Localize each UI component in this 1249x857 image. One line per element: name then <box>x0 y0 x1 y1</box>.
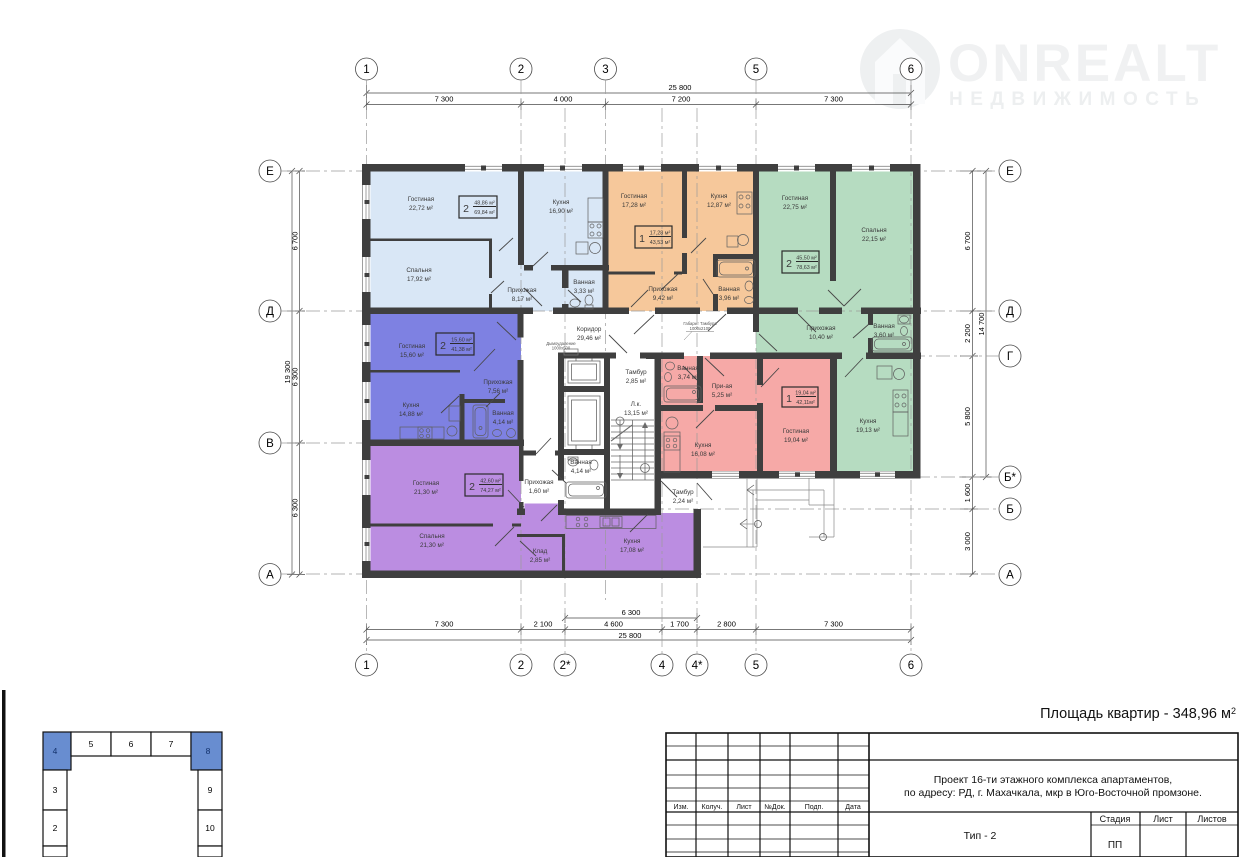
svg-text:А: А <box>266 570 274 582</box>
svg-text:Клад: Клад <box>533 548 548 555</box>
svg-text:16,90 м²: 16,90 м² <box>549 208 573 215</box>
svg-text:Прихожая: Прихожая <box>524 479 553 486</box>
svg-text:5: 5 <box>89 739 94 749</box>
svg-text:17,92 м²: 17,92 м² <box>407 276 431 283</box>
svg-text:2: 2 <box>469 481 475 493</box>
svg-text:Листов: Листов <box>1197 814 1226 824</box>
svg-text:17,28 м²: 17,28 м² <box>622 202 646 209</box>
svg-text:В: В <box>266 438 274 450</box>
svg-text:3,60 м²: 3,60 м² <box>874 332 894 339</box>
svg-text:№Док.: №Док. <box>764 804 785 811</box>
svg-text:78,63 м²: 78,63 м² <box>796 265 817 271</box>
svg-text:48,86 м²: 48,86 м² <box>474 201 495 207</box>
svg-text:6 700: 6 700 <box>963 232 972 251</box>
svg-text:2: 2 <box>440 340 446 352</box>
svg-text:7 300: 7 300 <box>435 95 454 104</box>
svg-text:Площадь квартир - 348,96 м2: Площадь квартир - 348,96 м2 <box>1040 706 1236 722</box>
svg-text:4 600: 4 600 <box>604 620 623 629</box>
svg-text:22,72 м²: 22,72 м² <box>409 205 433 212</box>
svg-text:Ванная: Ванная <box>492 410 514 417</box>
svg-text:74,27 м²: 74,27 м² <box>480 488 501 494</box>
svg-text:2: 2 <box>518 64 524 76</box>
svg-text:1 700: 1 700 <box>670 620 689 629</box>
svg-text:А: А <box>1006 570 1014 582</box>
svg-text:6 300: 6 300 <box>291 368 300 387</box>
svg-text:Ванная: Ванная <box>718 286 740 293</box>
svg-text:5: 5 <box>753 64 759 76</box>
svg-text:Ванная: Ванная <box>677 365 699 372</box>
svg-text:Ванная: Ванная <box>570 459 592 466</box>
svg-text:1: 1 <box>639 233 645 245</box>
svg-text:Прихожая: Прихожая <box>648 286 677 293</box>
svg-text:Прихожая: Прихожая <box>507 287 536 294</box>
svg-text:7: 7 <box>169 739 174 749</box>
svg-text:2,24 м²: 2,24 м² <box>673 498 693 505</box>
svg-text:Гостиная: Гостиная <box>783 428 809 435</box>
svg-text:21,30 м²: 21,30 м² <box>420 542 444 549</box>
svg-text:Коридор: Коридор <box>577 326 602 333</box>
svg-text:25 800: 25 800 <box>669 83 692 92</box>
svg-text:9,42 м²: 9,42 м² <box>653 295 673 302</box>
svg-text:8: 8 <box>206 746 211 756</box>
svg-text:1 600: 1 600 <box>963 484 972 503</box>
svg-text:Колуч.: Колуч. <box>702 804 723 811</box>
svg-text:НЕДВИЖИМОСТЬ: НЕДВИЖИМОСТЬ <box>949 89 1206 110</box>
svg-text:2 100: 2 100 <box>534 620 553 629</box>
svg-text:45,50 м²: 45,50 м² <box>796 256 817 262</box>
svg-text:14,88 м²: 14,88 м² <box>399 411 423 418</box>
svg-text:7 300: 7 300 <box>824 95 843 104</box>
svg-text:Кухня: Кухня <box>553 199 570 206</box>
svg-text:Д: Д <box>1006 306 1014 318</box>
svg-text:4: 4 <box>659 660 666 672</box>
svg-text:Изм.: Изм. <box>674 804 689 811</box>
svg-text:2: 2 <box>518 660 524 672</box>
svg-text:14 700: 14 700 <box>977 313 986 336</box>
svg-text:2 200: 2 200 <box>963 324 972 343</box>
svg-text:29,46 м²: 29,46 м² <box>577 335 601 342</box>
svg-text:Кухня: Кухня <box>860 418 877 425</box>
svg-text:17,08 м²: 17,08 м² <box>620 547 644 554</box>
svg-text:25 800: 25 800 <box>619 631 642 640</box>
svg-text:8,17 м²: 8,17 м² <box>512 296 532 303</box>
svg-text:5 800: 5 800 <box>963 407 972 426</box>
svg-text:2: 2 <box>53 823 58 833</box>
svg-text:3: 3 <box>53 785 58 795</box>
svg-text:Тамбур: Тамбур <box>625 368 647 376</box>
svg-text:Лист: Лист <box>1153 814 1173 824</box>
svg-text:1,60 м²: 1,60 м² <box>529 488 549 495</box>
svg-text:Спальня: Спальня <box>406 267 431 274</box>
svg-text:4 000: 4 000 <box>554 95 573 104</box>
svg-text:1: 1 <box>363 64 369 76</box>
svg-text:6 300: 6 300 <box>622 608 641 617</box>
svg-text:по адресу: РД, г. Махачкала, м: по адресу: РД, г. Махачкала, мкр в Юго-В… <box>904 787 1202 799</box>
svg-text:Кухня: Кухня <box>403 402 420 409</box>
svg-text:41,38 м²: 41,38 м² <box>451 347 472 353</box>
svg-text:Е: Е <box>266 166 274 178</box>
svg-text:6: 6 <box>908 64 914 76</box>
svg-text:1000х2100: 1000х2100 <box>690 326 711 331</box>
svg-text:17,28 м²: 17,28 м² <box>650 231 671 237</box>
svg-text:4*: 4* <box>692 660 703 672</box>
svg-text:Ванная: Ванная <box>573 279 595 286</box>
svg-text:2 800: 2 800 <box>717 620 736 629</box>
svg-text:Тамбур: Тамбур <box>672 488 694 496</box>
svg-text:Проект 16-ти этажного комплекс: Проект 16-ти этажного комплекса апартаме… <box>934 774 1172 786</box>
svg-text:3: 3 <box>602 64 608 76</box>
svg-text:42,60 м²: 42,60 м² <box>480 479 501 485</box>
svg-text:3,33 м²: 3,33 м² <box>574 288 594 295</box>
svg-text:Кухня: Кухня <box>711 193 728 200</box>
svg-text:69,84 м²: 69,84 м² <box>474 210 495 216</box>
svg-text:22,15 м²: 22,15 м² <box>862 236 886 243</box>
svg-text:2,85 м²: 2,85 м² <box>626 378 646 385</box>
svg-text:Л.к.: Л.к. <box>631 401 642 408</box>
svg-text:Спальня: Спальня <box>419 533 444 540</box>
svg-text:6: 6 <box>129 739 134 749</box>
svg-text:9: 9 <box>208 785 213 795</box>
svg-text:1: 1 <box>363 660 369 672</box>
svg-text:1000х500: 1000х500 <box>552 346 571 351</box>
svg-text:10: 10 <box>205 823 215 833</box>
svg-text:Лист: Лист <box>736 804 752 811</box>
svg-text:Е: Е <box>1006 166 1014 178</box>
svg-text:2: 2 <box>463 203 469 215</box>
svg-text:При-ая: При-ая <box>712 383 733 390</box>
svg-text:7 200: 7 200 <box>672 95 691 104</box>
svg-text:Гостиная: Гостиная <box>408 196 434 203</box>
svg-text:Б: Б <box>1006 504 1014 516</box>
svg-text:2: 2 <box>786 258 792 270</box>
svg-text:13,15 м²: 13,15 м² <box>624 410 648 417</box>
svg-text:4,14 м²: 4,14 м² <box>571 468 591 475</box>
svg-text:15,60 м²: 15,60 м² <box>400 352 424 359</box>
svg-text:Кухня: Кухня <box>624 538 641 545</box>
svg-text:2,85 м²: 2,85 м² <box>530 557 550 564</box>
svg-text:6 300: 6 300 <box>291 499 300 518</box>
svg-text:42,11м²: 42,11м² <box>796 400 815 406</box>
svg-text:6 700: 6 700 <box>291 232 300 251</box>
svg-text:Ванная: Ванная <box>873 323 895 330</box>
svg-text:6: 6 <box>908 660 914 672</box>
svg-text:Б*: Б* <box>1004 472 1017 484</box>
svg-text:16,08 м²: 16,08 м² <box>691 451 715 458</box>
svg-text:4: 4 <box>53 746 58 756</box>
svg-text:Стадия: Стадия <box>1100 814 1131 824</box>
svg-text:21,30 м²: 21,30 м² <box>414 489 438 496</box>
svg-text:2*: 2* <box>560 660 571 672</box>
svg-text:7,56 м²: 7,56 м² <box>488 388 508 395</box>
svg-text:Дата: Дата <box>845 804 861 811</box>
svg-text:Гостиная: Гостиная <box>621 193 647 200</box>
svg-text:43,53 м²: 43,53 м² <box>650 240 671 246</box>
svg-text:Гостиная: Гостиная <box>782 195 808 202</box>
svg-text:5: 5 <box>753 660 759 672</box>
svg-text:4,14 м²: 4,14 м² <box>493 419 513 426</box>
svg-text:15,60 м²: 15,60 м² <box>451 338 472 344</box>
svg-text:3,96 м²: 3,96 м² <box>719 295 739 302</box>
svg-text:Гостиная: Гостиная <box>413 480 439 487</box>
svg-text:Спальня: Спальня <box>861 227 886 234</box>
svg-text:ONREALT: ONREALT <box>948 34 1221 93</box>
svg-text:12,87 м²: 12,87 м² <box>707 202 731 209</box>
svg-text:Г: Г <box>1007 351 1014 363</box>
svg-text:19,13 м²: 19,13 м² <box>856 427 880 434</box>
svg-text:Кухня: Кухня <box>695 442 712 449</box>
svg-text:7 300: 7 300 <box>435 620 454 629</box>
svg-text:Прихожая: Прихожая <box>806 325 835 332</box>
svg-text:7 300: 7 300 <box>824 620 843 629</box>
svg-text:3 000: 3 000 <box>963 532 972 551</box>
svg-text:Гостиная: Гостиная <box>399 343 425 350</box>
svg-text:Д: Д <box>266 306 274 318</box>
svg-text:22,75 м²: 22,75 м² <box>783 204 807 211</box>
svg-text:Прихожая: Прихожая <box>483 379 512 386</box>
svg-text:Тип - 2: Тип - 2 <box>964 830 997 842</box>
svg-text:19,04 м²: 19,04 м² <box>784 437 808 444</box>
svg-text:Подп.: Подп. <box>805 804 824 811</box>
svg-text:19,04 м²: 19,04 м² <box>795 391 816 397</box>
svg-text:5,25 м²: 5,25 м² <box>712 392 732 399</box>
svg-text:ПП: ПП <box>1108 840 1122 851</box>
svg-text:3,74 м²: 3,74 м² <box>678 374 698 381</box>
svg-text:1: 1 <box>786 393 792 405</box>
svg-text:10,40 м²: 10,40 м² <box>809 334 833 341</box>
